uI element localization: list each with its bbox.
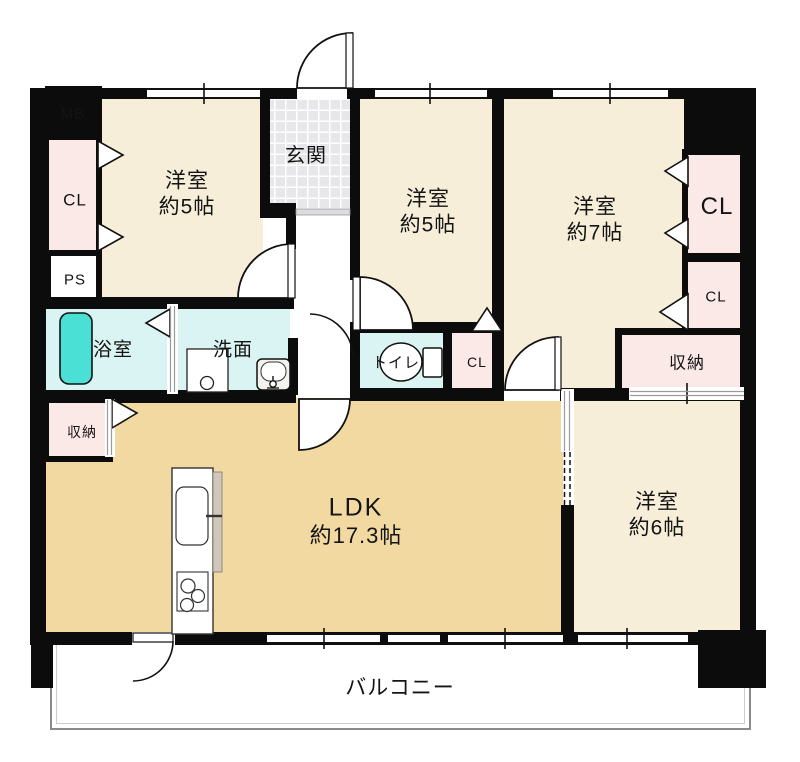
wall-room5left-bottom xyxy=(30,297,294,309)
label-cl-right-top: CL xyxy=(701,195,734,219)
entrance-door-arc xyxy=(297,33,352,88)
wall-room5mid-bottom xyxy=(350,322,504,333)
wall-hall-left xyxy=(286,217,296,249)
label-storage-right: 収納 xyxy=(669,355,705,372)
label-western7-1: 洋室 xyxy=(573,197,617,218)
storage-left-sliding-door xyxy=(105,399,115,457)
pillar-top-right xyxy=(684,88,756,155)
wall-entrance-bottom xyxy=(260,203,296,218)
wall-ldk6-divider xyxy=(561,505,574,633)
window-top-3 xyxy=(553,88,668,99)
wall-ldk-top xyxy=(30,390,296,403)
wall-entrance-left xyxy=(260,88,270,210)
label-western6-1: 洋室 xyxy=(635,492,679,513)
storage-right-sliding-door xyxy=(629,387,744,400)
label-cl-right-mid: CL xyxy=(705,290,726,305)
label-bath: 浴室 xyxy=(93,341,133,360)
label-western5-mid-2: 約5帖 xyxy=(400,215,457,236)
window-bottom-3 xyxy=(448,633,563,644)
entrance-door-leaf xyxy=(346,33,353,88)
open-wall-dashed xyxy=(565,452,571,506)
label-washroom: 洗面 xyxy=(213,341,253,360)
window-bottom-2 xyxy=(388,633,440,644)
wall-mid7-divider xyxy=(492,88,504,388)
bath-sliding-door xyxy=(167,304,178,394)
window-top-1 xyxy=(147,88,260,99)
pillar-bottom-right xyxy=(698,630,766,688)
wall-toilet-right xyxy=(443,328,452,393)
wall-hall-right xyxy=(350,88,360,280)
label-western6-2: 約6帖 xyxy=(629,518,686,539)
wall-toilet-left xyxy=(350,328,360,393)
balcony-door-opening xyxy=(132,632,175,645)
label-western5-mid-1: 洋室 xyxy=(406,189,450,210)
ldk6-opening xyxy=(561,389,574,452)
label-western7-2: 約7帖 xyxy=(567,223,624,244)
label-storage-left: 収納 xyxy=(67,425,97,439)
label-cl-mid: CL xyxy=(467,355,487,369)
label-balcony: バルコニー xyxy=(345,678,455,699)
label-mb: MB xyxy=(61,107,86,122)
pillar-bottom-left xyxy=(31,632,53,688)
wall-right xyxy=(740,88,756,637)
label-ldk-1: LDK xyxy=(329,496,384,521)
wall-wet-bottom xyxy=(350,388,504,401)
label-ps: PS xyxy=(64,273,86,288)
window-bottom-4 xyxy=(578,633,688,644)
label-western5-left-2: 約5帖 xyxy=(159,197,216,218)
floor-plan: MB CL PS 洋室 約5帖 玄関 洋室 約5帖 洋室 約7帖 CL CL 浴… xyxy=(0,0,800,762)
wall-washroom-hall xyxy=(288,338,298,395)
room-ldk xyxy=(46,398,563,634)
entrance-door-opening xyxy=(297,88,347,99)
label-cl-left: CL xyxy=(63,192,87,209)
room7-door-opening xyxy=(504,388,560,401)
window-bottom-1 xyxy=(267,633,380,644)
window-top-2 xyxy=(375,88,487,99)
wall-left xyxy=(30,88,46,638)
label-ldk-2: 約17.3帖 xyxy=(310,525,403,547)
label-toilet: トイレ xyxy=(372,356,420,371)
label-western5-left-1: 洋室 xyxy=(165,171,209,192)
label-entrance: 玄関 xyxy=(285,146,327,166)
